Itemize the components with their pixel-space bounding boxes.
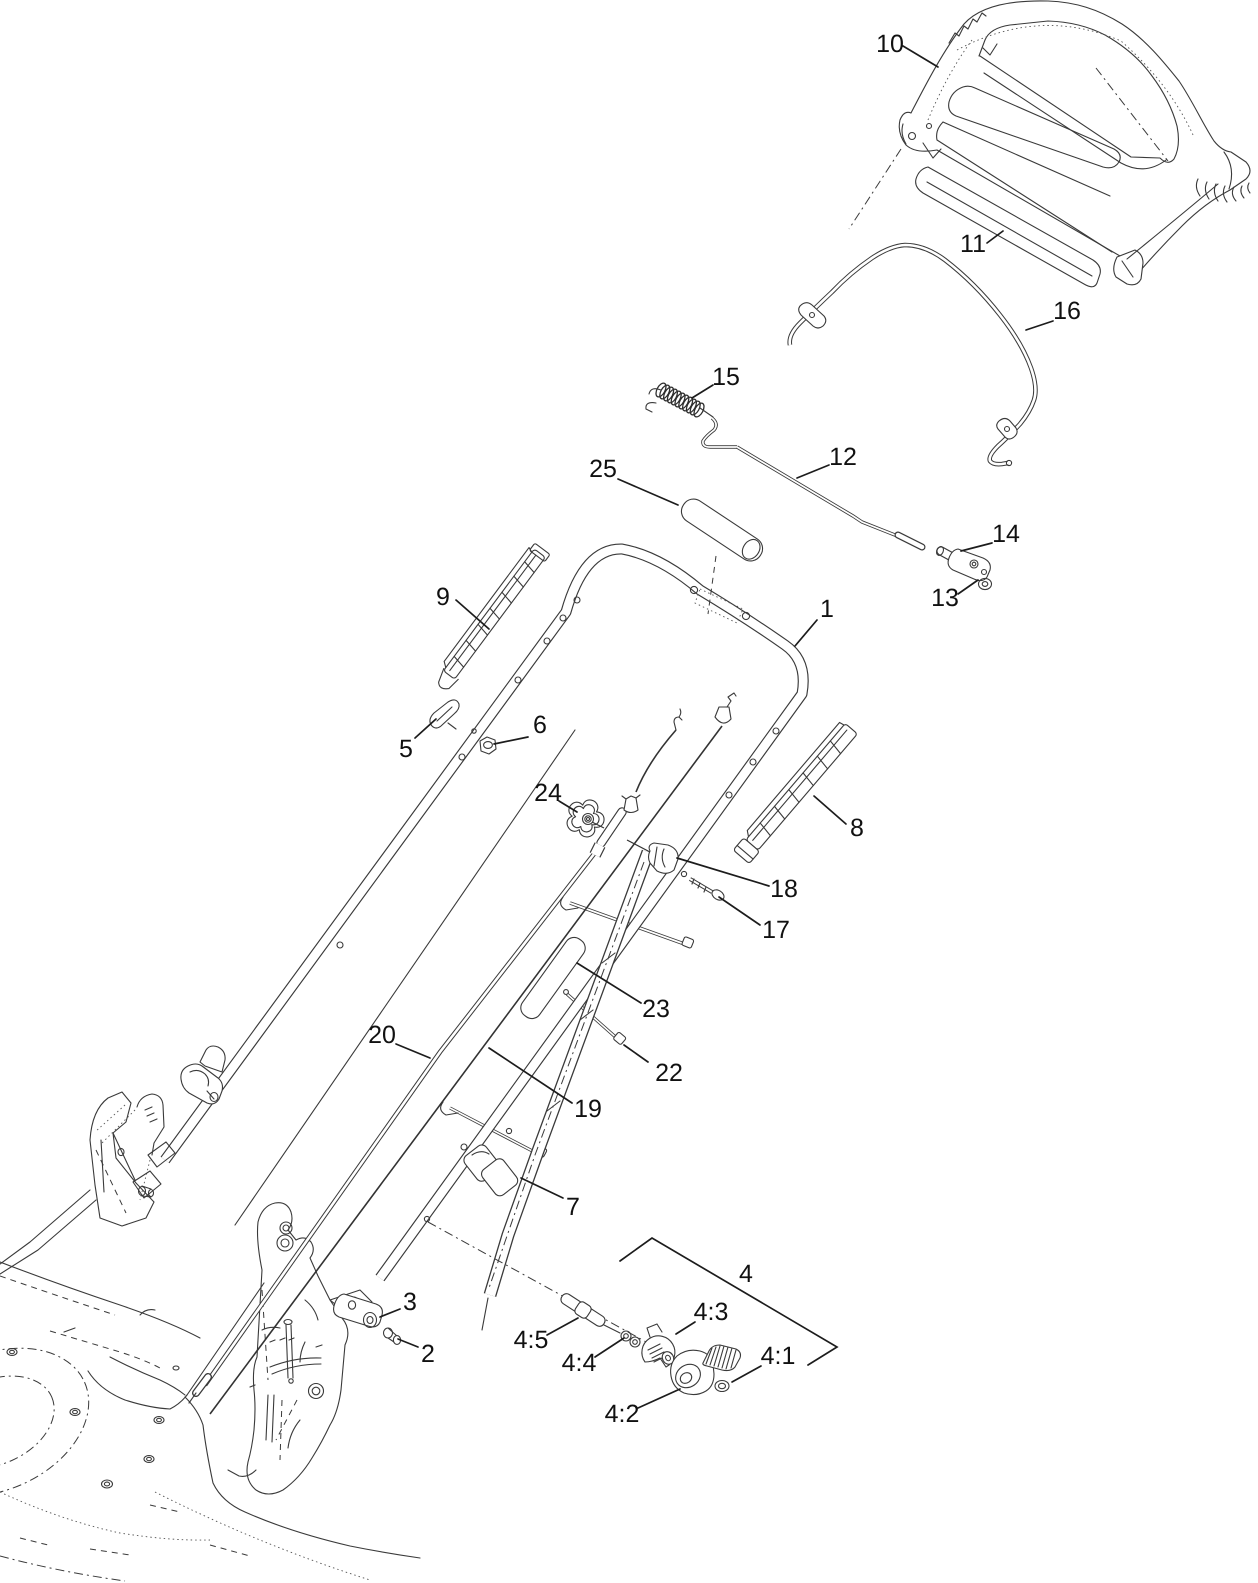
svg-text:4:2: 4:2 [605, 1400, 640, 1428]
svg-text:1: 1 [820, 595, 834, 623]
svg-text:19: 19 [574, 1095, 602, 1123]
svg-text:9: 9 [436, 583, 450, 611]
svg-text:20: 20 [368, 1021, 396, 1049]
svg-text:23: 23 [642, 995, 670, 1023]
svg-text:13: 13 [931, 584, 959, 612]
svg-text:4:1: 4:1 [761, 1342, 796, 1370]
svg-text:4:3: 4:3 [694, 1298, 729, 1326]
svg-text:4:5: 4:5 [514, 1326, 549, 1354]
svg-text:16: 16 [1053, 297, 1081, 325]
svg-text:14: 14 [992, 520, 1020, 548]
svg-text:18: 18 [770, 875, 798, 903]
svg-text:4:4: 4:4 [562, 1349, 597, 1377]
svg-text:10: 10 [876, 30, 904, 58]
svg-text:22: 22 [655, 1059, 683, 1087]
svg-text:5: 5 [399, 735, 413, 763]
svg-text:3: 3 [403, 1288, 417, 1316]
svg-text:8: 8 [850, 814, 864, 842]
svg-text:7: 7 [566, 1193, 580, 1221]
svg-text:6: 6 [533, 711, 547, 739]
svg-text:15: 15 [712, 363, 740, 391]
svg-text:24: 24 [534, 779, 562, 807]
svg-text:17: 17 [762, 916, 790, 944]
svg-text:25: 25 [589, 455, 617, 483]
svg-text:11: 11 [960, 230, 986, 258]
svg-text:4: 4 [739, 1260, 753, 1288]
svg-text:2: 2 [421, 1340, 435, 1368]
svg-text:12: 12 [829, 443, 857, 471]
